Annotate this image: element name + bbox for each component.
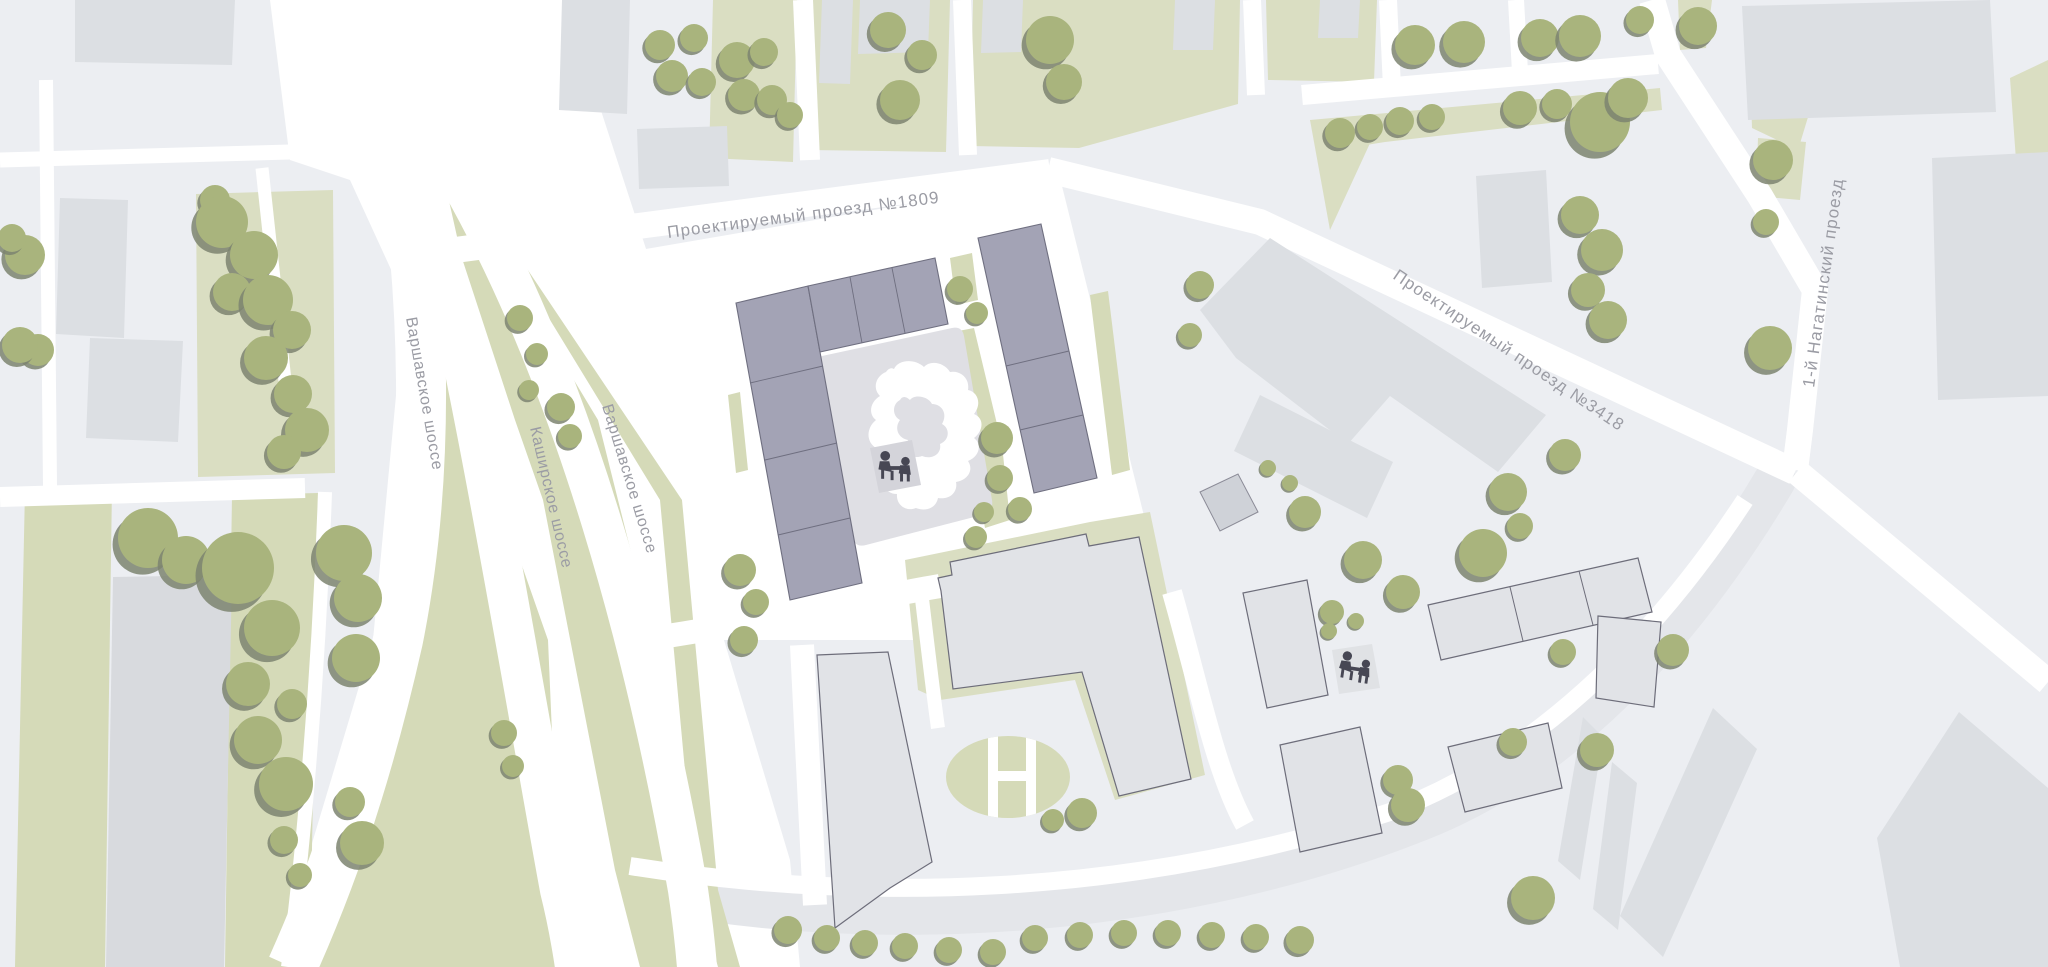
- building: [1596, 616, 1661, 707]
- tree-icon: [677, 24, 708, 55]
- tree-icon: [1153, 920, 1181, 949]
- building: [106, 575, 232, 967]
- road: [803, 0, 810, 160]
- tree-icon: [1065, 922, 1093, 951]
- tree-icon: [1546, 439, 1581, 475]
- building: [1318, 0, 1360, 38]
- tree-icon: [642, 30, 675, 63]
- building: [1932, 152, 2048, 400]
- road: [1388, 0, 1392, 88]
- road: [46, 80, 50, 486]
- tree-icon: [1383, 575, 1420, 613]
- tree-icon: [1439, 21, 1485, 68]
- site-plan-map[interactable]: Проектируемый проезд №1809 Проектируемый…: [0, 0, 2048, 967]
- building: [819, 0, 853, 84]
- tree-icon: [1320, 623, 1337, 641]
- tree-icon: [1176, 323, 1202, 350]
- road: [0, 152, 290, 160]
- building: [559, 0, 630, 114]
- tree-icon: [890, 933, 918, 962]
- tree-icon: [1064, 798, 1097, 831]
- road: [1048, 170, 1795, 472]
- tree-icon: [1744, 326, 1792, 375]
- road: [1797, 472, 2048, 682]
- tree-icon: [1604, 78, 1648, 122]
- tree-icon: [1241, 924, 1269, 953]
- tree-icon: [1183, 271, 1214, 302]
- building: [981, 0, 1023, 53]
- green-area: [15, 487, 112, 967]
- building: [1742, 0, 1996, 120]
- tree-icon: [1347, 613, 1364, 631]
- building: [1620, 708, 1757, 957]
- road: [1252, 0, 1256, 95]
- tree-icon: [653, 60, 688, 96]
- building: [75, 0, 235, 65]
- tree-icon: [1318, 600, 1344, 627]
- tree-icon: [1281, 475, 1298, 493]
- tree-icon: [1486, 473, 1527, 515]
- tree-icon: [1283, 926, 1314, 957]
- tree-icon: [1455, 529, 1507, 582]
- road: [962, 0, 968, 155]
- building: [1476, 170, 1552, 288]
- tree-icon: [1341, 541, 1382, 583]
- building: [1200, 474, 1258, 531]
- green-area: [2010, 60, 2048, 168]
- building: [637, 126, 729, 189]
- tree-icon: [978, 939, 1006, 967]
- tree-icon: [1109, 920, 1137, 949]
- tree-icon: [850, 930, 878, 959]
- building: [1877, 712, 2048, 967]
- map-canvas[interactable]: Проектируемый проезд №1809 Проектируемый…: [0, 0, 2048, 967]
- road: [0, 488, 305, 497]
- tree-icon: [1197, 922, 1225, 951]
- building: [1173, 0, 1215, 50]
- building: [56, 198, 128, 338]
- road: [802, 645, 815, 905]
- tree-icon: [1507, 876, 1555, 925]
- tree-icon: [1040, 809, 1064, 833]
- tree-icon: [934, 937, 962, 966]
- building: [1243, 580, 1328, 708]
- tree-icon: [1555, 15, 1601, 62]
- tree-icon: [1286, 496, 1321, 532]
- tree-icon: [1505, 513, 1533, 542]
- tree-icon: [1548, 639, 1576, 668]
- building: [86, 338, 183, 442]
